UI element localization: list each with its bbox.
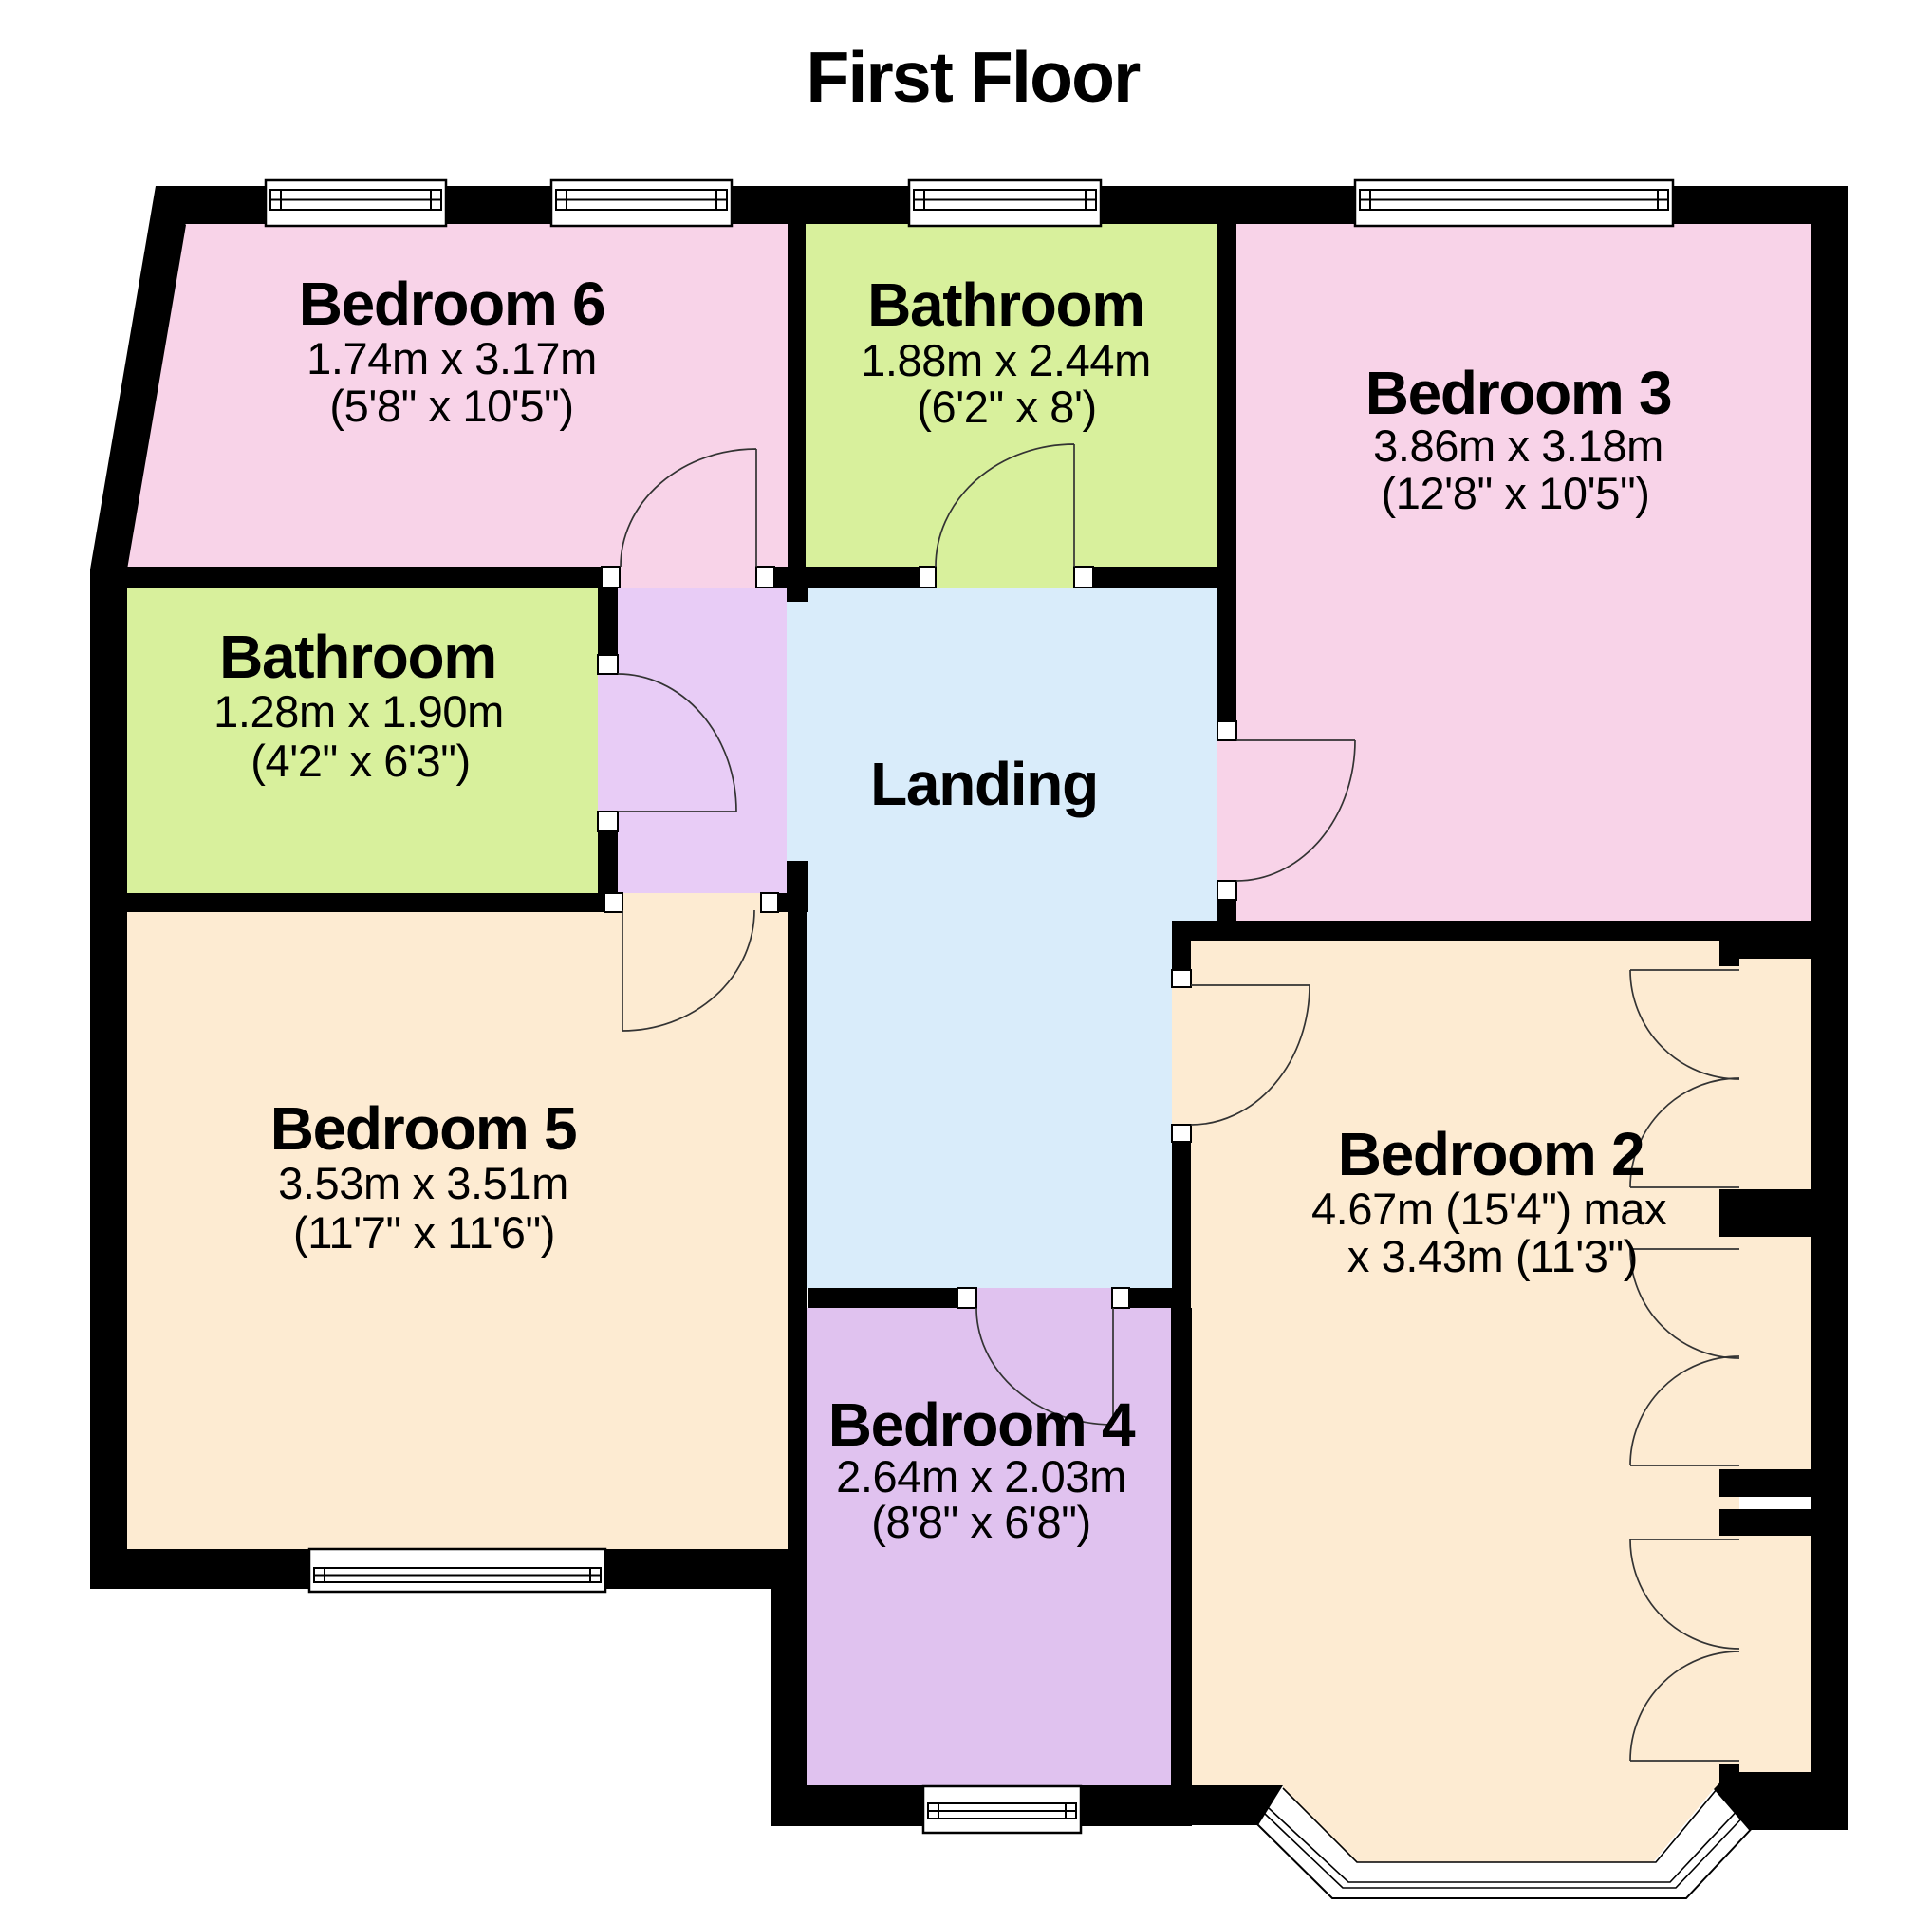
svg-text:Bedroom 6: Bedroom 6 — [299, 270, 605, 338]
svg-text:Landing: Landing — [870, 750, 1098, 818]
svg-text:x 3.43m (11'3"): x 3.43m (11'3") — [1347, 1231, 1638, 1281]
svg-text:Bathroom: Bathroom — [867, 271, 1144, 339]
svg-text:(4'2" x 6'3"): (4'2" x 6'3") — [251, 736, 471, 786]
svg-text:1.74m x 3.17m: 1.74m x 3.17m — [307, 333, 597, 383]
svg-text:4.67m (15'4") max: 4.67m (15'4") max — [1311, 1184, 1666, 1234]
svg-text:(11'7" x 11'6"): (11'7" x 11'6") — [293, 1207, 555, 1258]
svg-text:3.53m x 3.51m: 3.53m x 3.51m — [278, 1158, 568, 1208]
svg-text:Bedroom 3: Bedroom 3 — [1365, 359, 1672, 427]
svg-text:First Floor: First Floor — [806, 37, 1141, 117]
svg-text:(5'8" x 10'5"): (5'8" x 10'5") — [329, 381, 573, 431]
svg-text:1.88m x 2.44m: 1.88m x 2.44m — [861, 335, 1151, 385]
svg-text:(12'8" x 10'5"): (12'8" x 10'5") — [1381, 468, 1649, 518]
svg-text:(6'2" x 8'): (6'2" x 8') — [917, 382, 1097, 432]
svg-text:Bedroom 5: Bedroom 5 — [270, 1094, 577, 1163]
svg-text:3.86m x 3.18m: 3.86m x 3.18m — [1373, 420, 1663, 471]
svg-text:Bedroom 2: Bedroom 2 — [1338, 1120, 1644, 1188]
svg-text:2.64m x 2.03m: 2.64m x 2.03m — [836, 1451, 1126, 1502]
svg-text:(8'8" x 6'8"): (8'8" x 6'8") — [871, 1497, 1091, 1547]
svg-text:Bathroom: Bathroom — [219, 623, 496, 691]
svg-text:1.28m x 1.90m: 1.28m x 1.90m — [214, 686, 504, 737]
svg-text:Bedroom 4: Bedroom 4 — [828, 1390, 1136, 1459]
